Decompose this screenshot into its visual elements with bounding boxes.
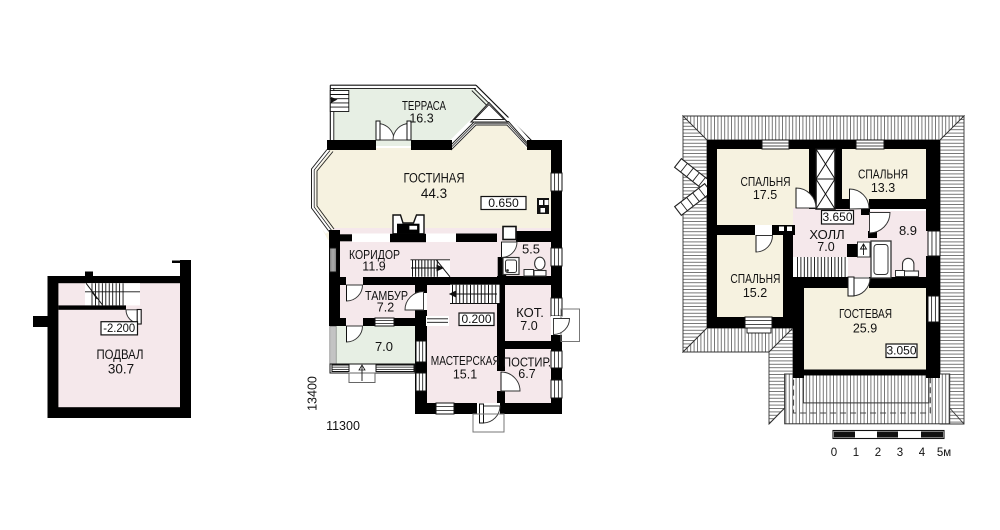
svg-text:7.2: 7.2 [377, 301, 394, 315]
svg-text:0.200: 0.200 [461, 312, 491, 326]
svg-text:15.1: 15.1 [453, 368, 477, 382]
svg-text:7.0: 7.0 [375, 339, 393, 354]
svg-text:0: 0 [831, 447, 837, 459]
svg-text:ПОДВАЛ: ПОДВАЛ [97, 347, 144, 362]
svg-text:5м: 5м [937, 447, 951, 459]
svg-text:1: 1 [853, 447, 859, 459]
svg-text:11.9: 11.9 [362, 260, 385, 274]
svg-text:7.0: 7.0 [817, 240, 834, 254]
svg-text:7.0: 7.0 [520, 319, 537, 333]
svg-text:13.3: 13.3 [871, 181, 895, 195]
svg-text:0.650: 0.650 [488, 196, 519, 210]
svg-text:5.5: 5.5 [522, 242, 540, 257]
svg-text:4: 4 [919, 447, 926, 459]
svg-text:15.2: 15.2 [743, 286, 767, 300]
svg-text:СПАЛЬНЯ: СПАЛЬНЯ [741, 175, 791, 189]
svg-text:2: 2 [875, 447, 881, 459]
svg-text:КОТ.: КОТ. [516, 305, 544, 320]
svg-text:3.650: 3.650 [822, 210, 852, 224]
svg-text:16.3: 16.3 [409, 112, 433, 126]
svg-text:44.3: 44.3 [421, 186, 447, 201]
svg-text:17.5: 17.5 [753, 188, 777, 202]
svg-text:СПАЛЬНЯ: СПАЛЬНЯ [858, 168, 908, 182]
svg-text:3.050: 3.050 [886, 344, 916, 358]
svg-text:-2.200: -2.200 [103, 321, 135, 335]
svg-text:3: 3 [897, 447, 903, 459]
svg-text:МАСТЕРСКАЯ: МАСТЕРСКАЯ [431, 353, 500, 368]
svg-text:6.7: 6.7 [518, 367, 535, 381]
svg-text:СПАЛЬНЯ: СПАЛЬНЯ [730, 272, 780, 286]
svg-text:ГОСТЕВАЯ: ГОСТЕВАЯ [839, 306, 892, 321]
svg-text:30.7: 30.7 [108, 362, 134, 377]
svg-text:11300: 11300 [326, 419, 360, 433]
svg-text:ГОСТИНАЯ: ГОСТИНАЯ [404, 171, 465, 186]
svg-text:13400: 13400 [306, 376, 320, 411]
svg-text:8.9: 8.9 [899, 223, 917, 238]
svg-text:25.9: 25.9 [853, 322, 877, 336]
